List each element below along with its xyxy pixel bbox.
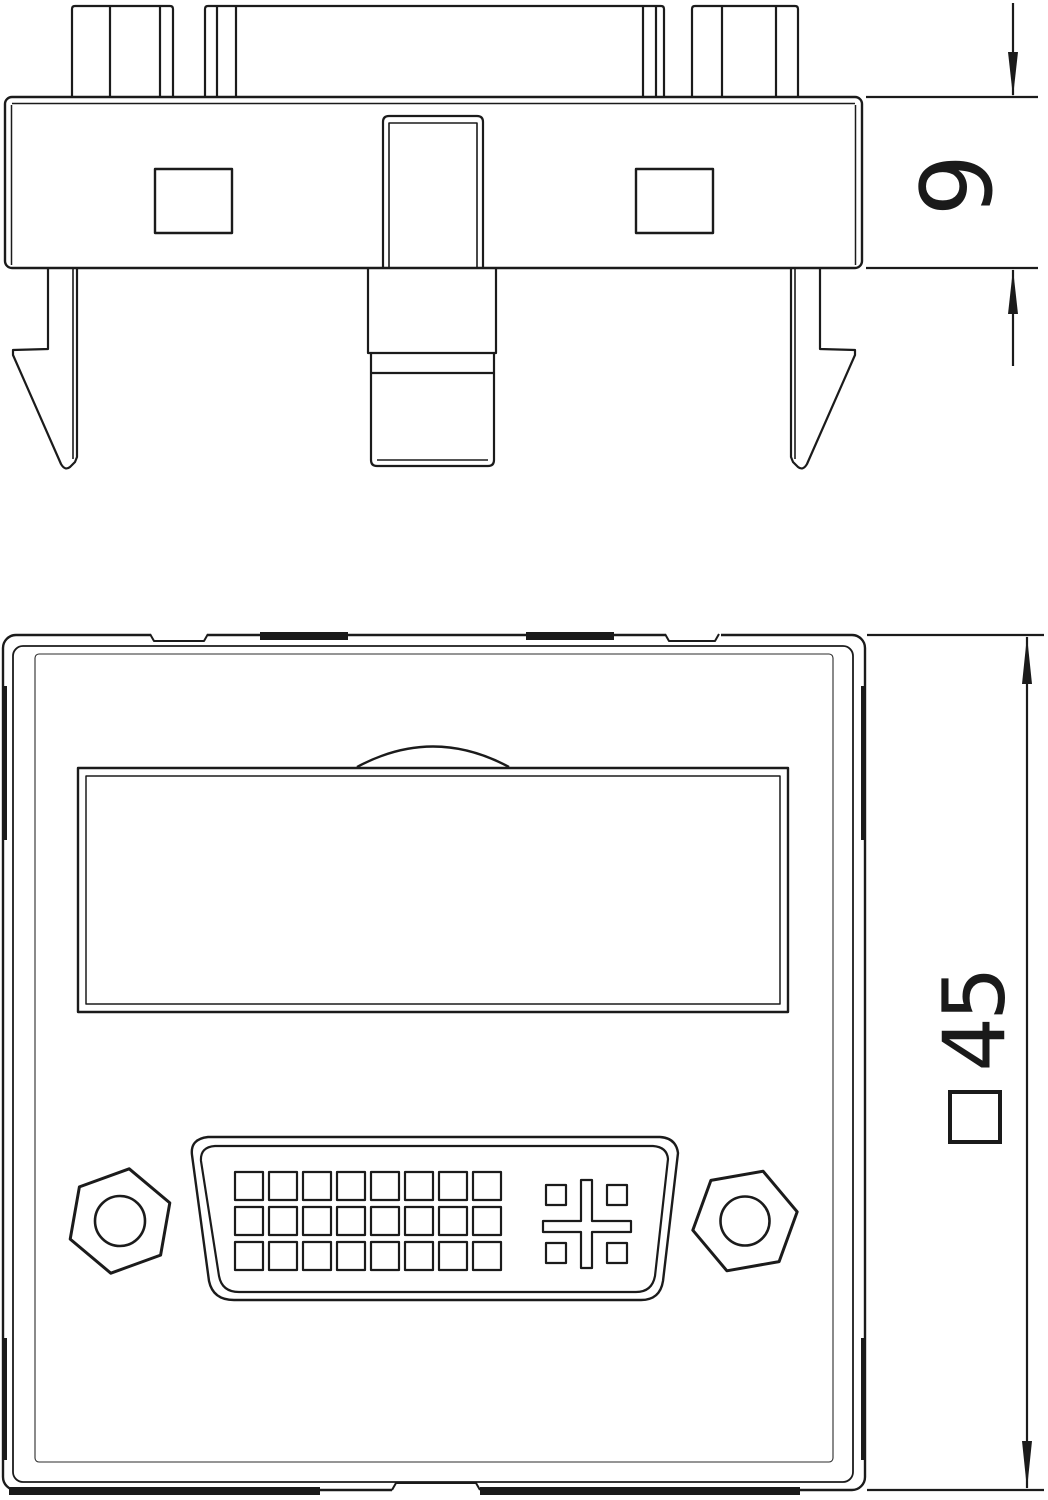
side-view [5, 6, 862, 468]
dvi-analog-section [543, 1180, 631, 1268]
dvi-outline-outer [192, 1137, 678, 1300]
snap-hook-left [13, 269, 77, 468]
dimension-9-label: 9 [903, 135, 1013, 235]
front-view [2, 630, 866, 1495]
dimension-9-value: 9 [909, 154, 1007, 216]
drawing-canvas [0, 0, 1048, 1500]
screw-post-right [693, 1171, 797, 1271]
rectangular-hole-right [636, 169, 713, 233]
mounting-tabs [72, 6, 798, 97]
arrowhead-down-icon [1008, 52, 1018, 97]
tab-left [72, 6, 173, 97]
screw-post-left [70, 1169, 170, 1273]
arrowhead-down-icon [1022, 1441, 1032, 1489]
label-field [78, 747, 788, 1013]
arrowhead-up-icon [1022, 636, 1032, 684]
technical-drawing-page: 9 45 [0, 0, 1048, 1500]
snap-hook-right [791, 269, 855, 468]
arrowhead-up-icon [1008, 269, 1018, 314]
dimension-45-value: 45 [932, 970, 1018, 1071]
square-profile-icon [948, 1090, 1002, 1144]
tab-center [205, 6, 664, 97]
tab-right [692, 6, 798, 97]
faceplate-outline [2, 630, 866, 1495]
analog-cross [543, 1180, 631, 1268]
dimension-45-label: 45 [930, 971, 1020, 1143]
dvi-connector [192, 1137, 678, 1300]
rectangular-hole-left [155, 169, 232, 233]
thumb-recess-arc [357, 747, 509, 768]
dvi-pin-grid [235, 1172, 501, 1270]
center-latch [368, 116, 496, 466]
